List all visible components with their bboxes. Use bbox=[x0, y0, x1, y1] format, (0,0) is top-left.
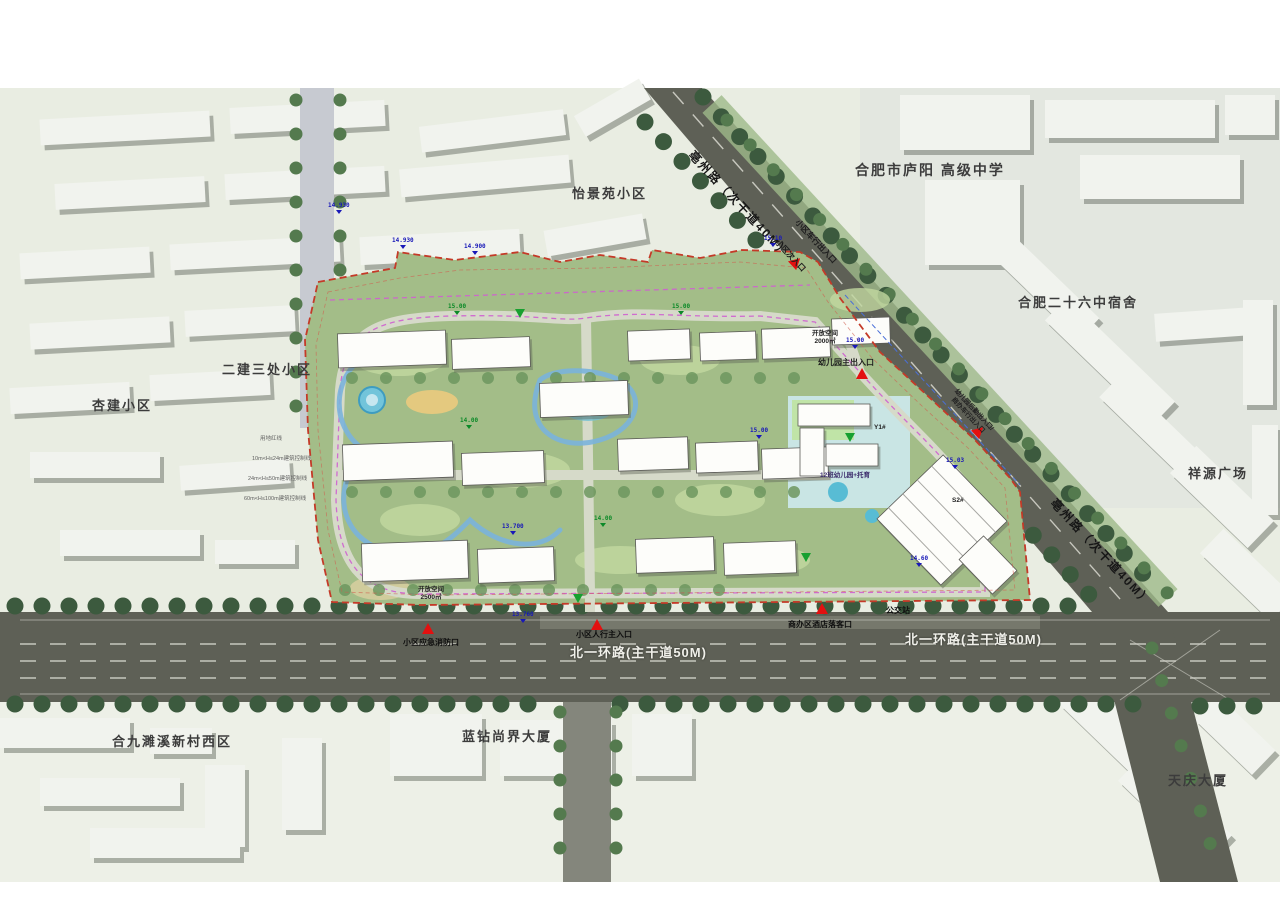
elevation-marker-icon bbox=[466, 425, 472, 429]
elevation-marker-icon bbox=[756, 435, 762, 439]
elevation-marker: 13.700 bbox=[502, 524, 524, 535]
label-bus-stop: 公交站 bbox=[886, 606, 910, 616]
label-erjian: 二建三处小区 bbox=[222, 362, 312, 378]
label-yijingyuan: 怡景苑小区 bbox=[572, 186, 647, 202]
open-space-2000-line2: 2000㎡ bbox=[812, 338, 838, 346]
label-beiyihuan-road-1: 北一环路(主干道50M) bbox=[570, 645, 707, 661]
elevation-marker-icon bbox=[400, 245, 406, 249]
elevation-marker-icon bbox=[472, 251, 478, 255]
label-setback-2: 24m<H≤50m建筑控制线 bbox=[248, 474, 307, 482]
label-kindergarten: 12班幼儿园+托育 bbox=[820, 472, 870, 480]
label-open-space-2500: 开放空间 2500㎡ bbox=[418, 586, 444, 602]
elevation-marker-icon bbox=[454, 311, 460, 315]
label-school: 合肥市庐阳 高级中学 bbox=[855, 162, 1005, 180]
elevation-marker-icon bbox=[770, 243, 776, 247]
elevation-marker: 15.10 bbox=[764, 236, 782, 247]
elevation-marker: 14.930 bbox=[328, 203, 350, 214]
label-tianqing: 天庆大厦 bbox=[1168, 773, 1228, 789]
elevation-marker-icon bbox=[678, 311, 684, 315]
open-space-2500-line2: 2500㎡ bbox=[418, 594, 444, 602]
elevation-marker-icon bbox=[336, 210, 342, 214]
label-beiyihuan-road-2: 北一环路(主干道50M) bbox=[905, 632, 1042, 648]
elevation-marker: 14.00 bbox=[594, 516, 612, 527]
label-setback-0: 用地红线 bbox=[260, 434, 282, 442]
elevation-marker-icon bbox=[600, 523, 606, 527]
master-plan-graphic bbox=[0, 0, 1280, 905]
elevation-marker: 15.00 bbox=[846, 338, 864, 349]
playground-area bbox=[406, 390, 458, 414]
elevation-marker-icon bbox=[952, 465, 958, 469]
kindergarten-pool bbox=[828, 482, 848, 502]
label-kindergarten-main-entrance: 幼儿园主出入口 bbox=[818, 358, 874, 368]
label-open-space-2000: 开放空间 2000㎡ bbox=[812, 330, 838, 346]
elevation-marker: 14.60 bbox=[910, 556, 928, 567]
label-building-y1: Y1# bbox=[874, 424, 886, 432]
elevation-marker: 15.03 bbox=[946, 458, 964, 469]
label-lanzuan: 蓝钻尚界大厦 bbox=[462, 729, 552, 745]
elevation-marker-icon bbox=[852, 345, 858, 349]
elevation-marker: 14.930 bbox=[392, 238, 414, 249]
open-space-2500-line1: 开放空间 bbox=[418, 586, 444, 594]
site-plan-image: 合肥市庐阳 高级中学 怡景苑小区 合肥二十六中宿舍 祥源广场 二建三处小区 杏建… bbox=[0, 0, 1280, 905]
elevation-marker-icon bbox=[916, 563, 922, 567]
label-setback-1: 10m<H≤24m建筑控制线 bbox=[252, 454, 311, 462]
label-building-s2: S2# bbox=[952, 497, 964, 505]
label-no26-dorm: 合肥二十六中宿舍 bbox=[1018, 295, 1138, 311]
label-pedestrian-main-entrance: 小区人行主入口 bbox=[576, 630, 632, 640]
elevation-marker-icon bbox=[520, 619, 526, 623]
label-xiangyuan: 祥源广场 bbox=[1188, 466, 1248, 482]
south-access-road bbox=[563, 700, 611, 882]
label-setback-3: 60m<H≤100m建筑控制线 bbox=[244, 494, 306, 502]
elevation-marker: 14.00 bbox=[460, 418, 478, 429]
elevation-marker: 15.00 bbox=[750, 428, 768, 439]
elevation-marker: 15.00 bbox=[672, 304, 690, 315]
label-xingjian: 杏建小区 bbox=[92, 398, 152, 414]
open-space-2000-line1: 开放空间 bbox=[812, 330, 838, 338]
elevation-marker: 13.760 bbox=[512, 612, 534, 623]
label-hotel-dropoff: 商办区酒店落客口 bbox=[788, 620, 852, 630]
elevation-marker: 14.900 bbox=[464, 244, 486, 255]
label-hejiu: 合九濉溪新村西区 bbox=[112, 734, 232, 750]
label-emergency-fire-entrance: 小区应急消防口 bbox=[403, 638, 459, 648]
elevation-marker: 15.00 bbox=[448, 304, 466, 315]
elevation-marker-icon bbox=[510, 531, 516, 535]
